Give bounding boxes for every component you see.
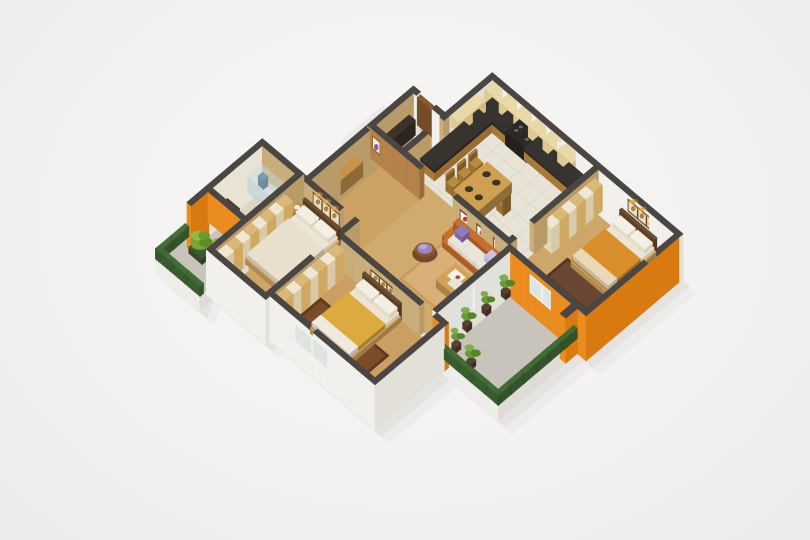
east-wall-orange — [582, 312, 586, 361]
bedroom3-window-mullion — [542, 286, 543, 301]
master-bed-art-print — [324, 206, 328, 211]
balcony-plant-4 — [457, 333, 465, 339]
floor-plan-stage — [0, 0, 810, 540]
dining-table-place-setting — [465, 186, 473, 192]
kitchen-counter-north-burner — [525, 138, 529, 141]
coffee-table-book — [455, 275, 460, 279]
balcony-plant-1 — [506, 280, 516, 287]
left-balcony-shrub-1 — [198, 231, 210, 239]
bedroom3-bed-art-print — [640, 213, 644, 218]
display-niche-1-vase — [374, 144, 378, 150]
master-bed-art-spotlight — [324, 200, 328, 203]
master-bed-art-spotlight — [332, 207, 336, 210]
balcony-plant-3 — [467, 312, 477, 319]
balcony-plant-5 — [465, 344, 474, 351]
master-bed-art-print — [316, 199, 320, 204]
master-bed-art-spotlight — [316, 193, 320, 196]
bedroom2-east-wall — [371, 381, 375, 430]
bedroom3-bed-art-spotlight — [631, 200, 635, 203]
apartment-3d-floor-plan-render — [0, 0, 810, 540]
kitchen-counter-north-burner — [514, 129, 518, 132]
bedroom3-west-wall-a — [530, 220, 534, 254]
kitchen-north-wall — [679, 234, 683, 283]
bedroom2-north-wall-a — [420, 302, 424, 336]
dining-table-place-setting — [475, 194, 483, 200]
balcony-plant-1 — [499, 274, 508, 280]
balcony-plant-3 — [461, 307, 470, 313]
niche-partition — [420, 166, 424, 200]
balcony-plant-2 — [487, 296, 495, 302]
dining-table-place-setting — [482, 171, 490, 177]
bedroom3-bed-art-print — [631, 206, 635, 211]
dining-table-place-setting — [492, 180, 500, 186]
bedroom2-window-mullion — [312, 338, 313, 355]
bedroom3-bed-art-spotlight — [640, 208, 644, 211]
master-bed-art-print — [332, 213, 336, 218]
round-chair-pillow — [419, 244, 427, 249]
balcony-plant-2 — [481, 291, 489, 297]
kitchen-counter-north-burner — [519, 126, 523, 129]
balcony-glass-door-mullion — [473, 286, 474, 311]
master-nightstand-left-top-item — [294, 205, 300, 209]
balcony-plant-4 — [451, 328, 459, 334]
balcony-plant-5 — [471, 350, 481, 357]
master-south-wall — [266, 296, 270, 345]
